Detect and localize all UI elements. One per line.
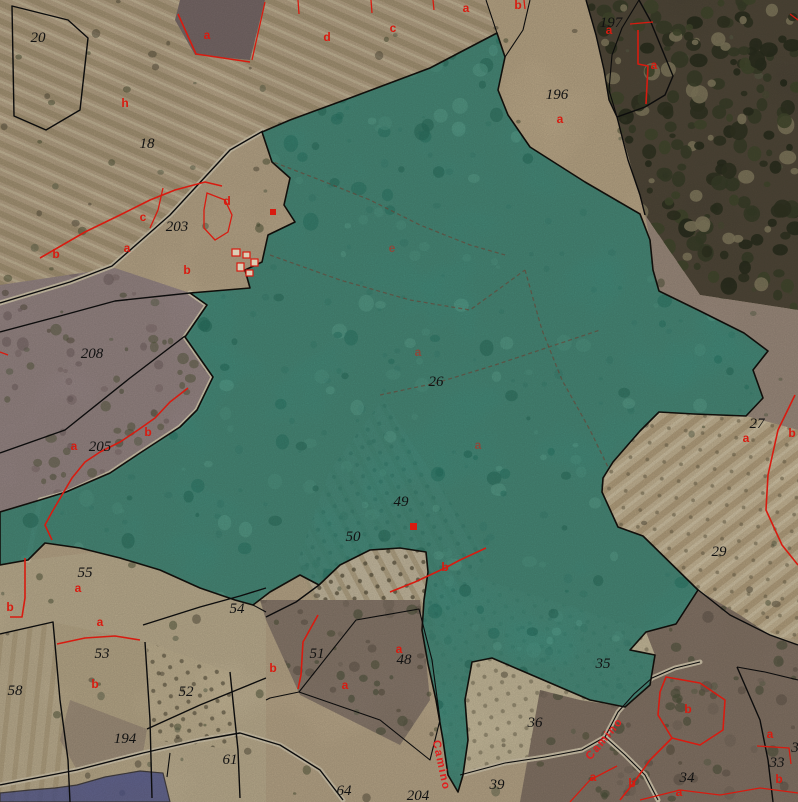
parcel-number: 39	[489, 777, 506, 793]
parcel-number: 204	[407, 788, 430, 802]
subparcel-letter: a	[767, 727, 774, 741]
cadastral-map[interactable]: 2018203197196208205262729495051485253545…	[0, 0, 798, 802]
subparcel-letter: b	[269, 661, 276, 675]
parcel-number: 194	[114, 731, 137, 747]
subparcel-letter: a	[557, 112, 564, 126]
subparcel-letter: a	[651, 58, 658, 72]
subparcel-letter: b	[144, 425, 151, 439]
subparcel-letter: b	[628, 776, 635, 790]
subparcel-letter: a	[71, 439, 78, 453]
subparcel-letter: d	[223, 194, 230, 208]
subparcel-letter: a	[75, 581, 82, 595]
parcel-number: 29	[712, 544, 728, 560]
subparcel-letter: a	[396, 642, 403, 656]
parcel-number: 35	[595, 656, 612, 672]
parcel-number: 50	[346, 529, 362, 545]
subparcel-letter: e	[389, 241, 396, 255]
parcel-number: 208	[81, 346, 104, 362]
subparcel-letter: b	[684, 702, 691, 716]
parcel-number: 18	[140, 136, 156, 152]
subparcel-letter: b	[788, 426, 795, 440]
subparcel-marker	[410, 523, 417, 530]
photo-tone	[0, 0, 798, 802]
parcel-number: 58	[8, 683, 24, 699]
parcel-number: 26	[429, 374, 445, 390]
subparcel-marker	[270, 209, 276, 215]
parcel-number: 55	[78, 565, 94, 581]
subparcel-letter: a	[676, 785, 683, 799]
subparcel-letter: b	[6, 600, 13, 614]
subparcel-letter: d	[323, 30, 330, 44]
parcel-number: 51	[310, 646, 325, 662]
parcel-number: 36	[527, 715, 544, 731]
subparcel-letter: a	[606, 23, 613, 37]
parcel-number: 34	[679, 770, 696, 786]
subparcel-letter: b	[514, 0, 521, 12]
subparcel-letter: a	[97, 615, 104, 629]
parcel-number: 20	[31, 30, 47, 46]
subparcel-letter: a	[204, 28, 211, 42]
parcel-number: 64	[337, 783, 353, 799]
subparcel-letter: a	[743, 431, 750, 445]
subparcel-letter: a	[342, 678, 349, 692]
parcel-number: 203	[166, 219, 189, 235]
subparcel-letter: a	[415, 345, 422, 359]
subparcel-letter: b	[52, 247, 59, 261]
parcel-number: 27	[750, 416, 767, 432]
subparcel-letter: c	[140, 210, 147, 224]
cadastral-map-viewport[interactable]: 2018203197196208205262729495051485253545…	[0, 0, 798, 802]
subparcel-letter: a	[590, 770, 597, 784]
subparcel-letter: a	[475, 438, 482, 452]
subparcel-letter: b	[91, 677, 98, 691]
subparcel-letter: a	[124, 241, 131, 255]
parcel-number: 61	[223, 752, 238, 768]
parcel-number: 54	[230, 601, 246, 617]
subparcel-letter: c	[390, 21, 397, 35]
parcel-number: 53	[95, 646, 110, 662]
parcel-number: 205	[89, 439, 112, 455]
subparcel-letter: h	[121, 96, 128, 110]
subparcel-letter: b	[441, 560, 448, 574]
parcel-number: 49	[394, 494, 410, 510]
subparcel-letter: b	[183, 263, 190, 277]
subparcel-letter: b	[775, 772, 782, 786]
parcel-number: 33	[769, 755, 785, 771]
parcel-number: 52	[179, 684, 195, 700]
parcel-number: 3	[790, 740, 798, 756]
parcel-number: 196	[546, 87, 569, 103]
subparcel-letter: a	[463, 1, 470, 15]
